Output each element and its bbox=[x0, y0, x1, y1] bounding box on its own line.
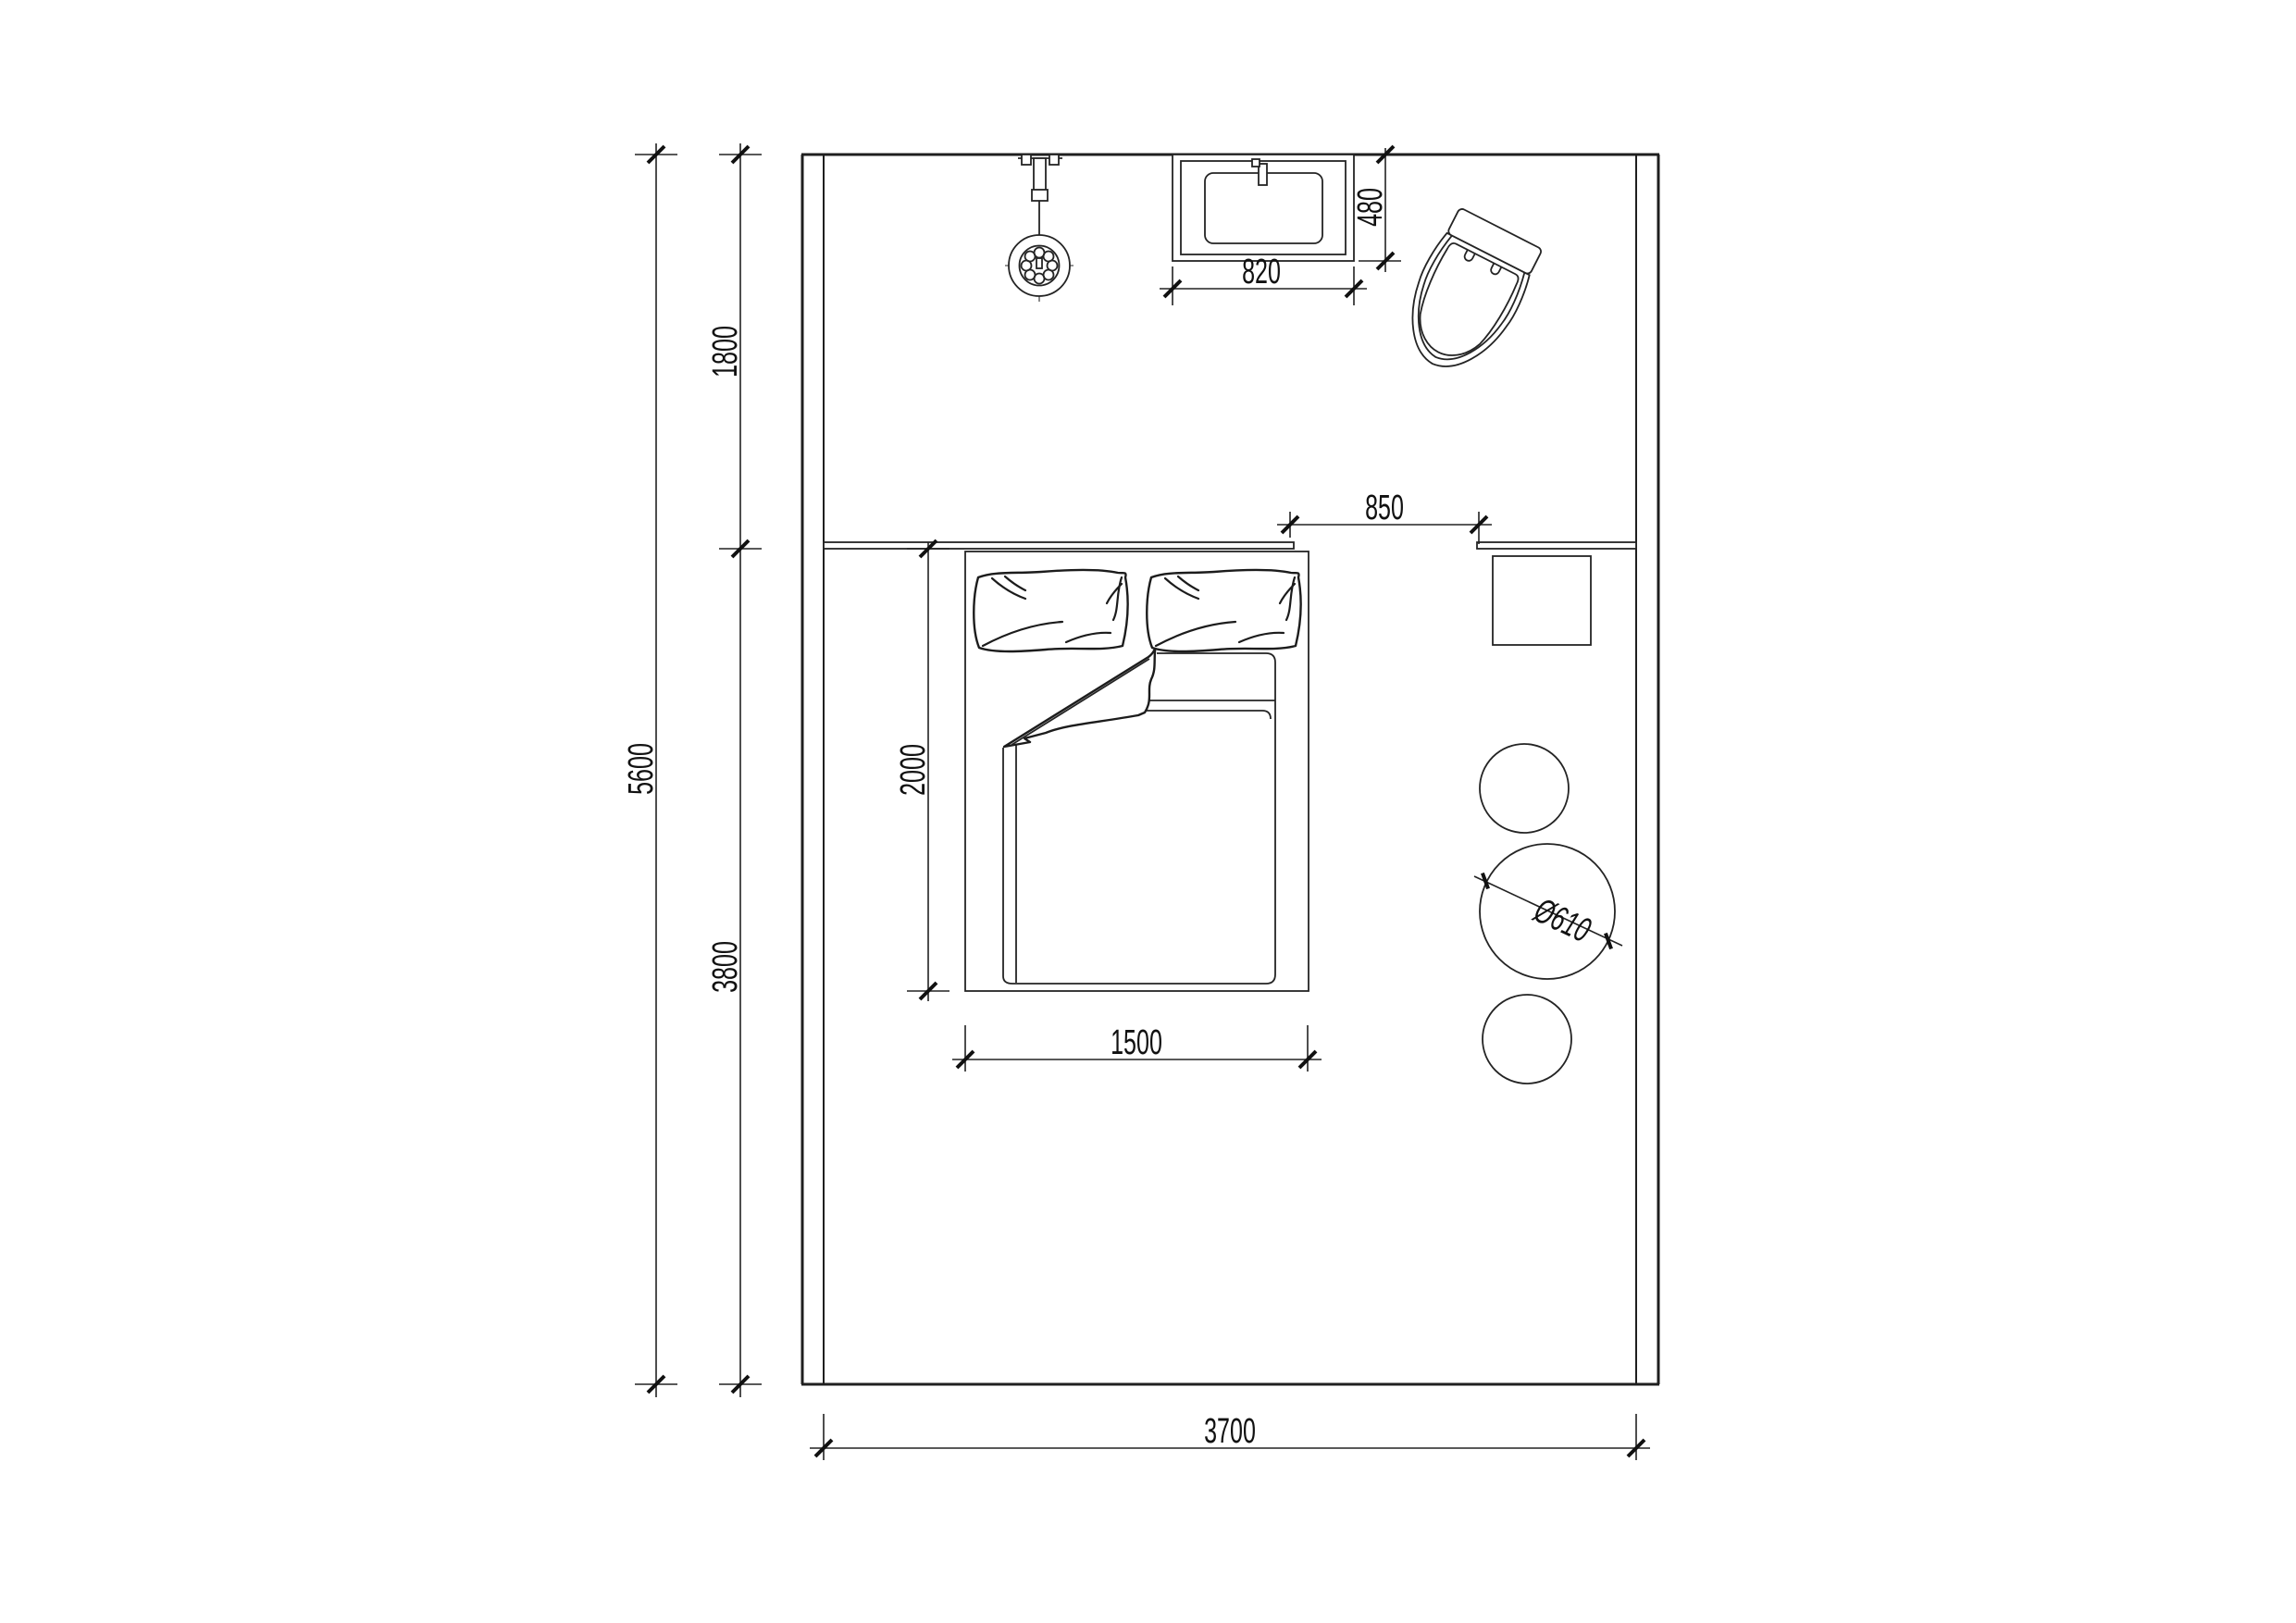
shower-mount-tab-left bbox=[1022, 155, 1031, 165]
shower-head-hub bbox=[1036, 258, 1042, 268]
dim-label-2000: 2000 bbox=[893, 744, 932, 796]
dim-label-5600: 5600 bbox=[621, 743, 660, 795]
dim-basin-depth: 480 bbox=[1350, 146, 1401, 272]
ledge-right-segment bbox=[1477, 542, 1636, 549]
washbasin bbox=[1173, 155, 1354, 261]
double-bed bbox=[965, 551, 1309, 991]
dim-bed-width: 1500 bbox=[952, 1022, 1322, 1072]
dim-zone-depths: 1800 3800 bbox=[705, 143, 762, 1397]
faucet-handle bbox=[1252, 159, 1260, 167]
dim-opening: 850 bbox=[1277, 488, 1492, 544]
dim-bed-length: 2000 bbox=[893, 540, 949, 1001]
ledge-left-segment bbox=[824, 542, 1294, 549]
dim-label-1500: 1500 bbox=[1111, 1022, 1162, 1061]
dim-room-width: 3700 bbox=[810, 1411, 1650, 1460]
side-cabinet bbox=[1493, 556, 1591, 645]
dim-label-850: 850 bbox=[1365, 488, 1404, 527]
stool-top bbox=[1480, 744, 1569, 833]
stool-bottom bbox=[1483, 995, 1571, 1084]
dim-label-1800: 1800 bbox=[705, 326, 744, 378]
toilet bbox=[1387, 205, 1546, 387]
floor-plan-canvas: 5600 1800 3800 3700 820 480 bbox=[0, 0, 2296, 1623]
dim-total-height: 5600 bbox=[621, 143, 677, 1397]
shower-mount-tab-right bbox=[1049, 155, 1059, 165]
shower-rail-bar bbox=[1034, 158, 1046, 192]
pillow-right bbox=[1147, 570, 1300, 651]
dim-label-820: 820 bbox=[1242, 252, 1281, 291]
headboard-ledge bbox=[824, 542, 1636, 549]
pillow-left bbox=[974, 570, 1127, 651]
shower-slider-clamp bbox=[1032, 190, 1048, 201]
shower-head bbox=[1005, 155, 1074, 302]
dim-label-3800: 3800 bbox=[705, 941, 744, 993]
dim-label-480: 480 bbox=[1350, 188, 1389, 227]
dim-label-3700: 3700 bbox=[1204, 1411, 1256, 1450]
